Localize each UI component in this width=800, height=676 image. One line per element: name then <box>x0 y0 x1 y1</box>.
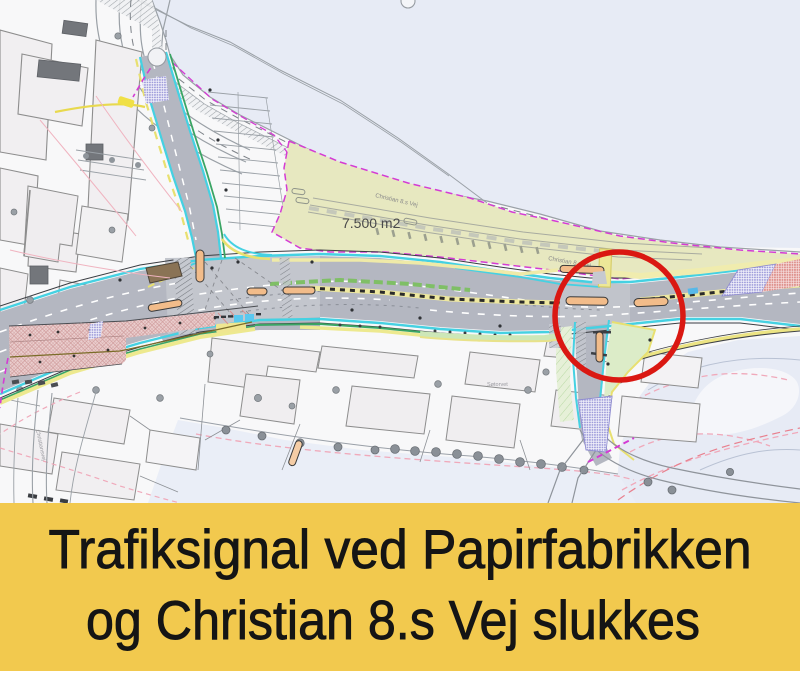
svg-text:og Christian 8.s Vej slukkes: og Christian 8.s Vej slukkes <box>86 589 700 651</box>
svg-text:Trafiksignal ved Papirfabrikke: Trafiksignal ved Papirfabrikken <box>49 518 752 580</box>
svg-text:Søtorvet: Søtorvet <box>487 382 508 388</box>
svg-text:7.500 m2: 7.500 m2 <box>342 215 401 231</box>
